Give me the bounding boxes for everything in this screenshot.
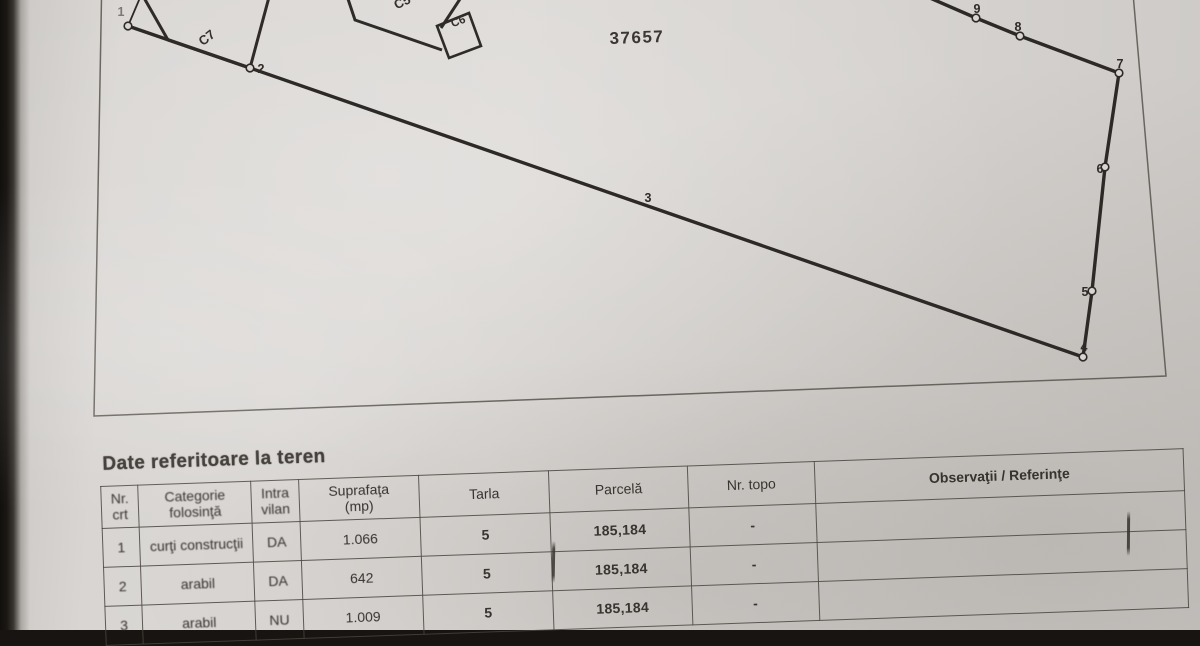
header-categorie: Categorie folosinţă (138, 481, 253, 527)
header-categorie-line2: folosinţă (141, 502, 250, 521)
pen-mark-observatii-column (1127, 511, 1130, 556)
header-intravilan-line2: vilan (254, 501, 297, 518)
row1-categorie: curţi construcţii (139, 523, 254, 566)
building-c7-label: C7 (196, 27, 218, 49)
row1-tarla: 5 (420, 513, 552, 557)
row3-parcela: 185,184 (553, 586, 693, 630)
row3-suprafata: 1.009 (302, 595, 424, 638)
building-c5-label: C5 (391, 0, 412, 12)
header-parcela: Parcelă (549, 466, 689, 513)
header-suprafata: Suprafaţa (mp) (298, 475, 420, 521)
row2-parcela: 185,184 (551, 547, 691, 591)
row2-suprafata: 642 (301, 556, 423, 599)
row1-intravilan: DA (252, 522, 300, 563)
building-c6: C6 (437, 13, 481, 58)
row1-parcela: 185,184 (550, 508, 690, 552)
terrain-data-section: Date referitoare la teren Nr. crt Catego… (99, 414, 1191, 646)
row1-nr-topo: - (688, 504, 817, 547)
header-intravilan-line1: Intra (254, 485, 297, 502)
row3-nr: 3 (105, 605, 143, 645)
row2-nr-topo: - (690, 542, 819, 585)
point-2-label: 2 (258, 62, 265, 76)
header-nr-topo: Nr. topo (687, 462, 816, 508)
boundary-vertex-markers (124, 14, 1123, 361)
row2-categorie: arabil (141, 562, 256, 605)
row1-suprafata: 1.066 (300, 517, 422, 560)
scanned-cadastral-document: { "plan": { "sheet_number": "37657", "bu… (0, 0, 1200, 630)
row2-nr: 2 (104, 566, 142, 606)
row2-tarla: 5 (421, 552, 553, 596)
header-nr-crt: Nr. crt (101, 485, 140, 528)
row3-nr-topo: - (691, 581, 820, 624)
point-8-label: 8 (1015, 20, 1022, 34)
sheet-number: 37657 (609, 27, 664, 48)
row1-nr: 1 (102, 527, 140, 567)
point-4-label: 4 (1081, 340, 1088, 354)
row2-intravilan: DA (254, 561, 302, 602)
header-nr-line1: Nr. (103, 491, 136, 508)
header-suprafata-line2: (mp) (301, 496, 417, 515)
point-7-label: 7 (1117, 57, 1124, 71)
boundary-vertex-labels: 1 2 3 4 5 6 7 8 9 (118, 2, 1124, 354)
point-9-label: 9 (974, 2, 981, 16)
header-tarla: Tarla (418, 471, 550, 518)
point-1-label: 1 (118, 5, 125, 19)
row3-intravilan: NU (255, 599, 303, 640)
plan-frame (94, 0, 1166, 416)
point-6-label: 6 (1097, 162, 1104, 176)
header-intravilan: Intra vilan (251, 480, 300, 524)
point-5-label: 5 (1082, 285, 1089, 299)
parcel-boundary (128, 0, 1119, 357)
row3-categorie: arabil (142, 601, 257, 644)
header-nr-line2: crt (104, 506, 137, 523)
point-3-label: 3 (645, 191, 652, 205)
row3-tarla: 5 (423, 591, 555, 635)
building-c6-label: C6 (449, 14, 467, 30)
